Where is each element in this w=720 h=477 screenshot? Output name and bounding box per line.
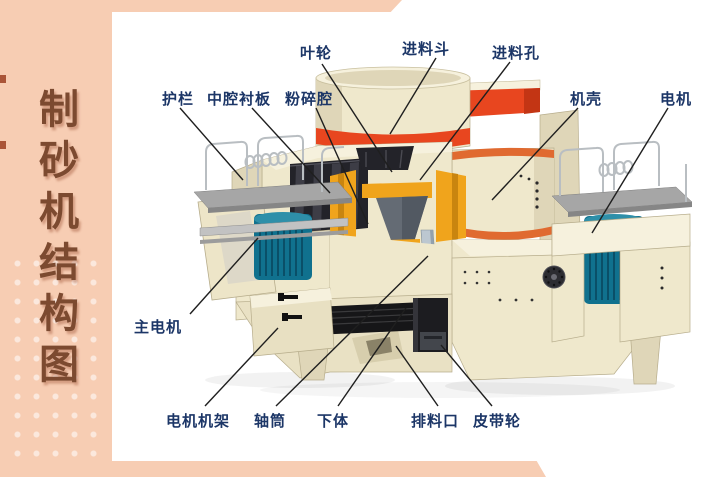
ground-shadow [205, 372, 675, 398]
pulley-shape [413, 298, 448, 352]
machine-illustration [0, 0, 720, 477]
motor-frame-shape [250, 288, 334, 356]
flange-shape [543, 266, 565, 288]
feed-hopper-shape [316, 67, 470, 152]
page: 制砂机结构图 [0, 0, 720, 477]
leader-line-motor-frame [205, 328, 278, 406]
leader-line-guardrail [180, 108, 243, 180]
casing-shape [452, 148, 554, 240]
